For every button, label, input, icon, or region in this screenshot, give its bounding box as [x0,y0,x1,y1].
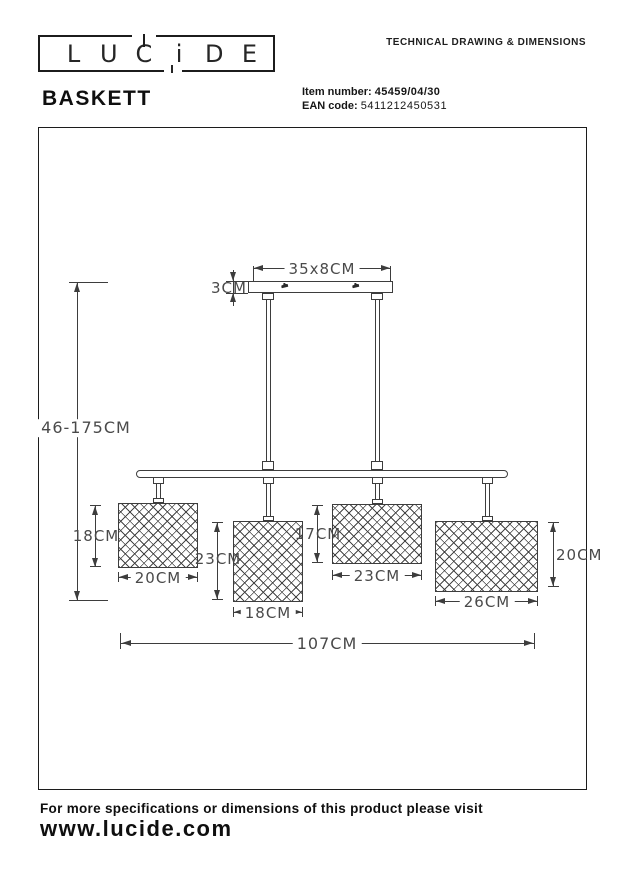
fixture-bar [136,470,508,478]
dim-arrow [254,265,263,271]
item-number-label: Item number: [302,86,372,98]
dim-arrow [550,577,556,586]
dim-canopy-width: 35x8CM [285,261,360,278]
dim-arrow [214,590,220,599]
dim-arrow [333,572,342,578]
dim-tick [69,600,108,601]
footer-website: www.lucide.com [40,816,233,842]
shade-1 [118,503,198,568]
rod-connector [262,461,274,470]
dim-line [77,282,78,600]
dim-shade1-height: 18CM [73,528,120,545]
footer-note: For more specifications or dimensions of… [40,801,483,816]
dim-shade4-width: 26CM [460,594,515,611]
spec-sheet-page: L U C i D E TECHNICAL DRAWING & DIMENSIO… [0,0,620,877]
rod-connector [371,293,383,300]
dim-arrow [74,591,80,600]
dim-tick [312,562,323,563]
dim-arrow [92,506,98,515]
dim-overall-height: 46-175CM [37,419,135,437]
item-number-row: Item number: 45459/04/30 [302,85,447,99]
suspension-rod-left [266,300,271,462]
dim-arrow [214,523,220,532]
ean-label: EAN code: [302,100,358,112]
dim-arrow [528,598,537,604]
dim-canopy-height: 3CM [211,280,247,297]
shade2-rod [266,484,271,517]
rod-connector [372,477,383,484]
dim-shade2-width: 18CM [241,605,296,622]
dim-tick [548,586,559,587]
suspension-rod-right [375,300,380,462]
ceiling-canopy [248,281,393,293]
ean-value: 5411212450531 [361,100,448,112]
dim-arrow [524,640,533,646]
document-title: TECHNICAL DRAWING & DIMENSIONS [386,37,586,48]
shade-3 [332,504,422,564]
rod-connector [263,477,274,484]
dim-arrow [74,283,80,292]
dim-overall-width: 107CM [293,635,362,653]
logo-letter: U [91,42,126,66]
rod-connector [482,477,493,484]
logo-letter: E [232,42,267,66]
logo-letter: D [197,42,232,66]
rod-connector [371,461,383,470]
dim-tick [212,599,223,600]
dim-arrow [92,558,98,567]
dim-shade3-height: 17CM [295,526,342,543]
shade3-rod [375,484,380,500]
product-name: BASKETT [42,87,152,111]
dim-shade3-width: 23CM [350,568,405,585]
dim-arrow [119,574,128,580]
dim-tick [390,266,391,282]
dim-arrow [412,572,421,578]
logo-letter: L [56,42,91,66]
dim-arrow [122,640,131,646]
dim-tick [537,596,538,606]
dim-tick [534,633,535,649]
dim-arrow [314,506,320,515]
logo-i-descender [171,65,173,73]
logo-pendant-rod-icon [143,34,145,47]
dim-arrow [436,598,445,604]
logo-frame-gap [164,69,182,73]
dim-tick [197,572,198,582]
shade-4 [435,521,538,592]
dim-arrow [381,265,390,271]
shade4-rod [485,484,490,517]
dim-arrow [188,574,197,580]
ean-row: EAN code: 5411212450531 [302,99,447,113]
drawing-frame [38,127,587,790]
dim-arrow [550,523,556,532]
dim-shade2-height: 23CM [195,551,242,568]
shade-2 [233,521,303,602]
lucide-logo: L U C i D E [38,35,275,72]
product-codes: Item number: 45459/04/30 EAN code: 54112… [302,85,447,113]
rod-connector [153,477,164,484]
dim-tick [302,607,303,617]
dim-shade4-height: 20CM [556,547,603,564]
shade1-rod [156,484,161,499]
dim-shade1-width: 20CM [131,570,186,587]
dim-arrow [314,553,320,562]
dim-tick [120,633,121,649]
dim-tick [421,570,422,580]
item-number-value: 45459/04/30 [375,86,441,98]
rod-connector [262,293,274,300]
logo-letter: i [162,42,197,66]
